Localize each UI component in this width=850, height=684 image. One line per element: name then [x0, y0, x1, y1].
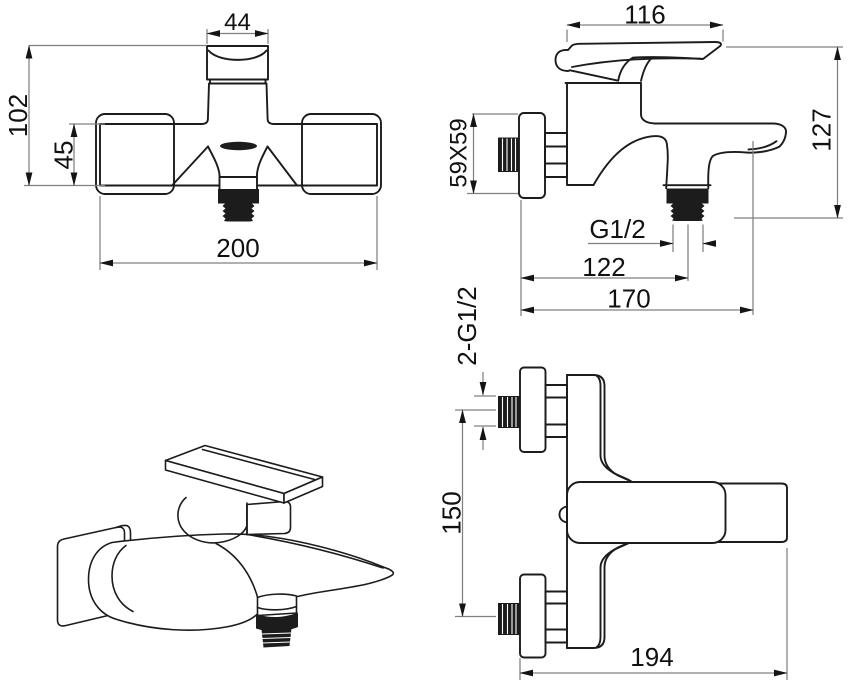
back-plate-scurve-upper-inner	[597, 376, 630, 480]
isometric-view	[58, 446, 394, 648]
dim-label-inlet-spacing: 150	[437, 491, 467, 534]
dim-label-escutcheon-size: 59X59	[446, 118, 473, 187]
faucet-body	[89, 534, 394, 630]
shower-outlet-thread	[671, 204, 705, 222]
wall-escutcheon	[519, 113, 545, 198]
body-right-pad	[302, 114, 381, 194]
dim-label-spout-width: 44	[224, 9, 251, 36]
back-plate-scurve-upper	[605, 386, 632, 482]
outlet-cylinder	[258, 594, 297, 615]
front-view-faucet-outline	[96, 46, 381, 194]
spout-underside	[594, 136, 668, 188]
spout-cup-arc	[209, 51, 267, 60]
dim-label-outlet-offset: 122	[582, 252, 625, 282]
ext-line	[567, 30, 723, 43]
top-view: 2-G1/2 150 194	[437, 286, 788, 680]
spout-cup	[207, 46, 268, 80]
faucet-technical-drawing: 44 102 45 200	[0, 0, 850, 684]
connector-nut-facets	[545, 147, 567, 164]
inlet-thread-lower	[498, 603, 520, 635]
dim-label-overall-height: 102	[3, 94, 33, 137]
spout-top-view	[567, 482, 726, 543]
handle-neck-inner	[641, 57, 653, 81]
dim-label-overall-width: 194	[630, 642, 673, 672]
set-screw-nub	[560, 507, 568, 523]
spout-neck	[202, 84, 275, 125]
dim-label-body-height: 45	[49, 141, 79, 170]
dim-label-outlet-thread: G1/2	[589, 214, 645, 244]
dim-label-handle-length: 116	[624, 0, 665, 30]
side-view-threads	[498, 138, 709, 222]
nut-upper-facets	[546, 398, 568, 425]
top-view-faucet-outline	[520, 368, 787, 658]
back-plate-scurve-lower-inner	[597, 543, 630, 647]
spout-funnel-right	[708, 152, 745, 188]
escutcheon-lower	[520, 575, 546, 658]
escutcheon-upper	[520, 368, 546, 453]
outlet-tube	[220, 175, 258, 190]
back-plate-scurve-lower	[605, 542, 632, 638]
iso-faucet	[58, 446, 394, 631]
spout-top	[655, 124, 786, 147]
shower-outlet-collar	[667, 189, 709, 204]
side-view-faucet-outline	[519, 42, 786, 198]
top-view-threads	[498, 396, 520, 635]
rear-bar	[247, 502, 291, 535]
dim-label-body-width: 200	[216, 233, 259, 263]
nut-upper	[546, 385, 568, 437]
handle-crease	[572, 58, 702, 67]
dim-label-overall-height: 127	[807, 108, 837, 151]
outlet-thread	[223, 204, 255, 222]
dim-label-overall-depth: 170	[607, 284, 650, 314]
front-view: 44 102 45 200	[3, 9, 381, 270]
nut-lower	[546, 592, 568, 643]
nut-lower-facets	[546, 604, 568, 630]
drawing-sheet: 44 102 45 200	[0, 0, 850, 684]
inlet-thread-upper	[498, 396, 520, 428]
water-inlet-lens	[220, 142, 257, 150]
outlet-funnel	[208, 147, 268, 175]
connector-nut	[545, 133, 567, 177]
dim-label-inlet-thread: 2-G1/2	[452, 286, 482, 366]
body-diagonals	[172, 147, 297, 186]
handle-lever	[556, 42, 721, 81]
outlet-collar	[218, 189, 259, 204]
front-view-dimensions: 44 102 45 200	[3, 9, 377, 270]
side-view: 116 127 59X59 G1/2 122 170	[446, 0, 844, 316]
valve-body	[566, 83, 656, 185]
ext-line	[474, 396, 496, 426]
body-left-pad	[96, 114, 174, 194]
